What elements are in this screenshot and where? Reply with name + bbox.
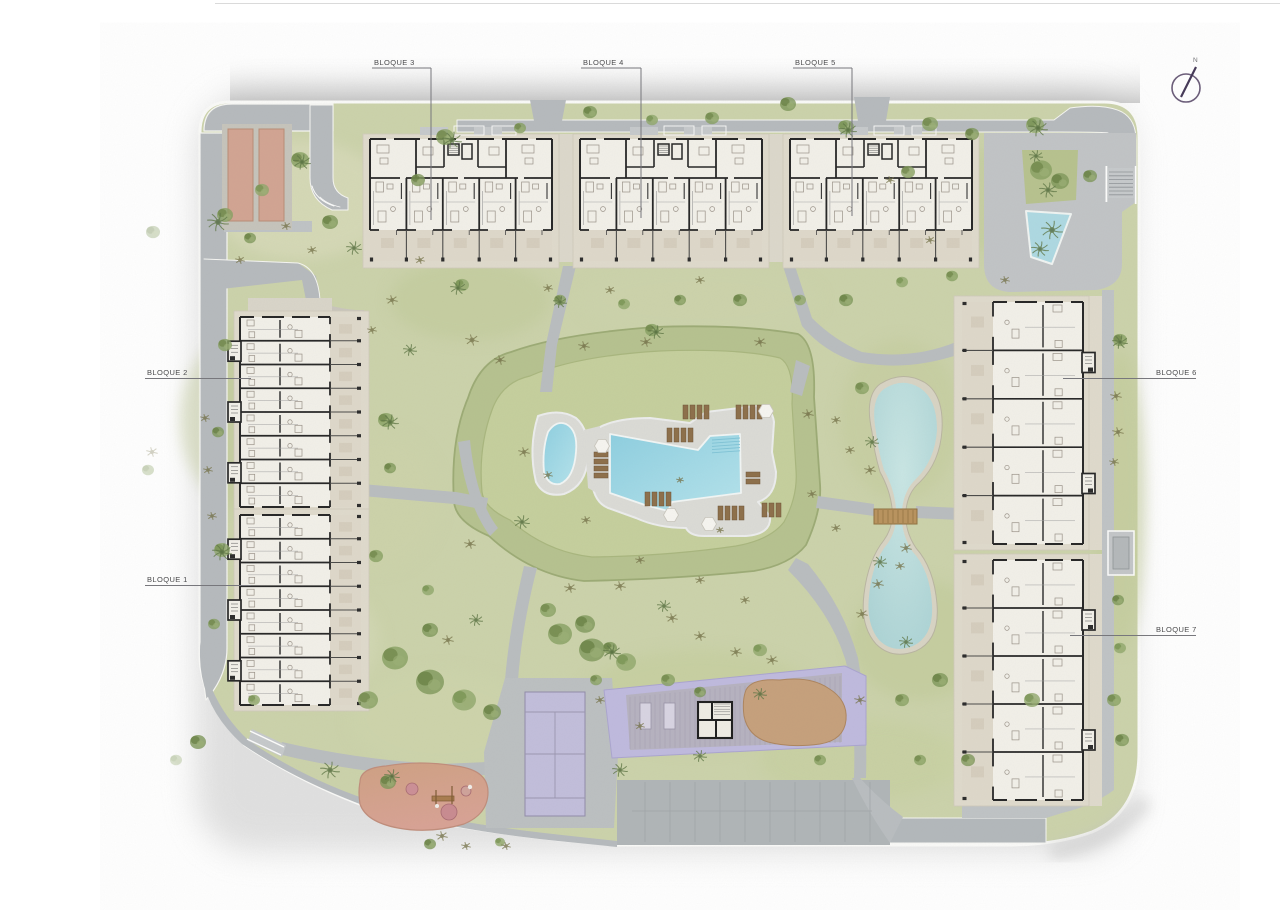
- svg-text:BLOQUE 2: BLOQUE 2: [147, 368, 188, 377]
- svg-text:BLOQUE 5: BLOQUE 5: [795, 58, 836, 67]
- svg-text:BLOQUE 3: BLOQUE 3: [374, 58, 415, 67]
- svg-text:BLOQUE 4: BLOQUE 4: [583, 58, 624, 67]
- svg-text:N: N: [1193, 57, 1198, 64]
- svg-text:BLOQUE 1: BLOQUE 1: [147, 575, 188, 584]
- svg-text:BLOQUE 6: BLOQUE 6: [1156, 368, 1197, 377]
- svg-text:BLOQUE 7: BLOQUE 7: [1156, 625, 1197, 634]
